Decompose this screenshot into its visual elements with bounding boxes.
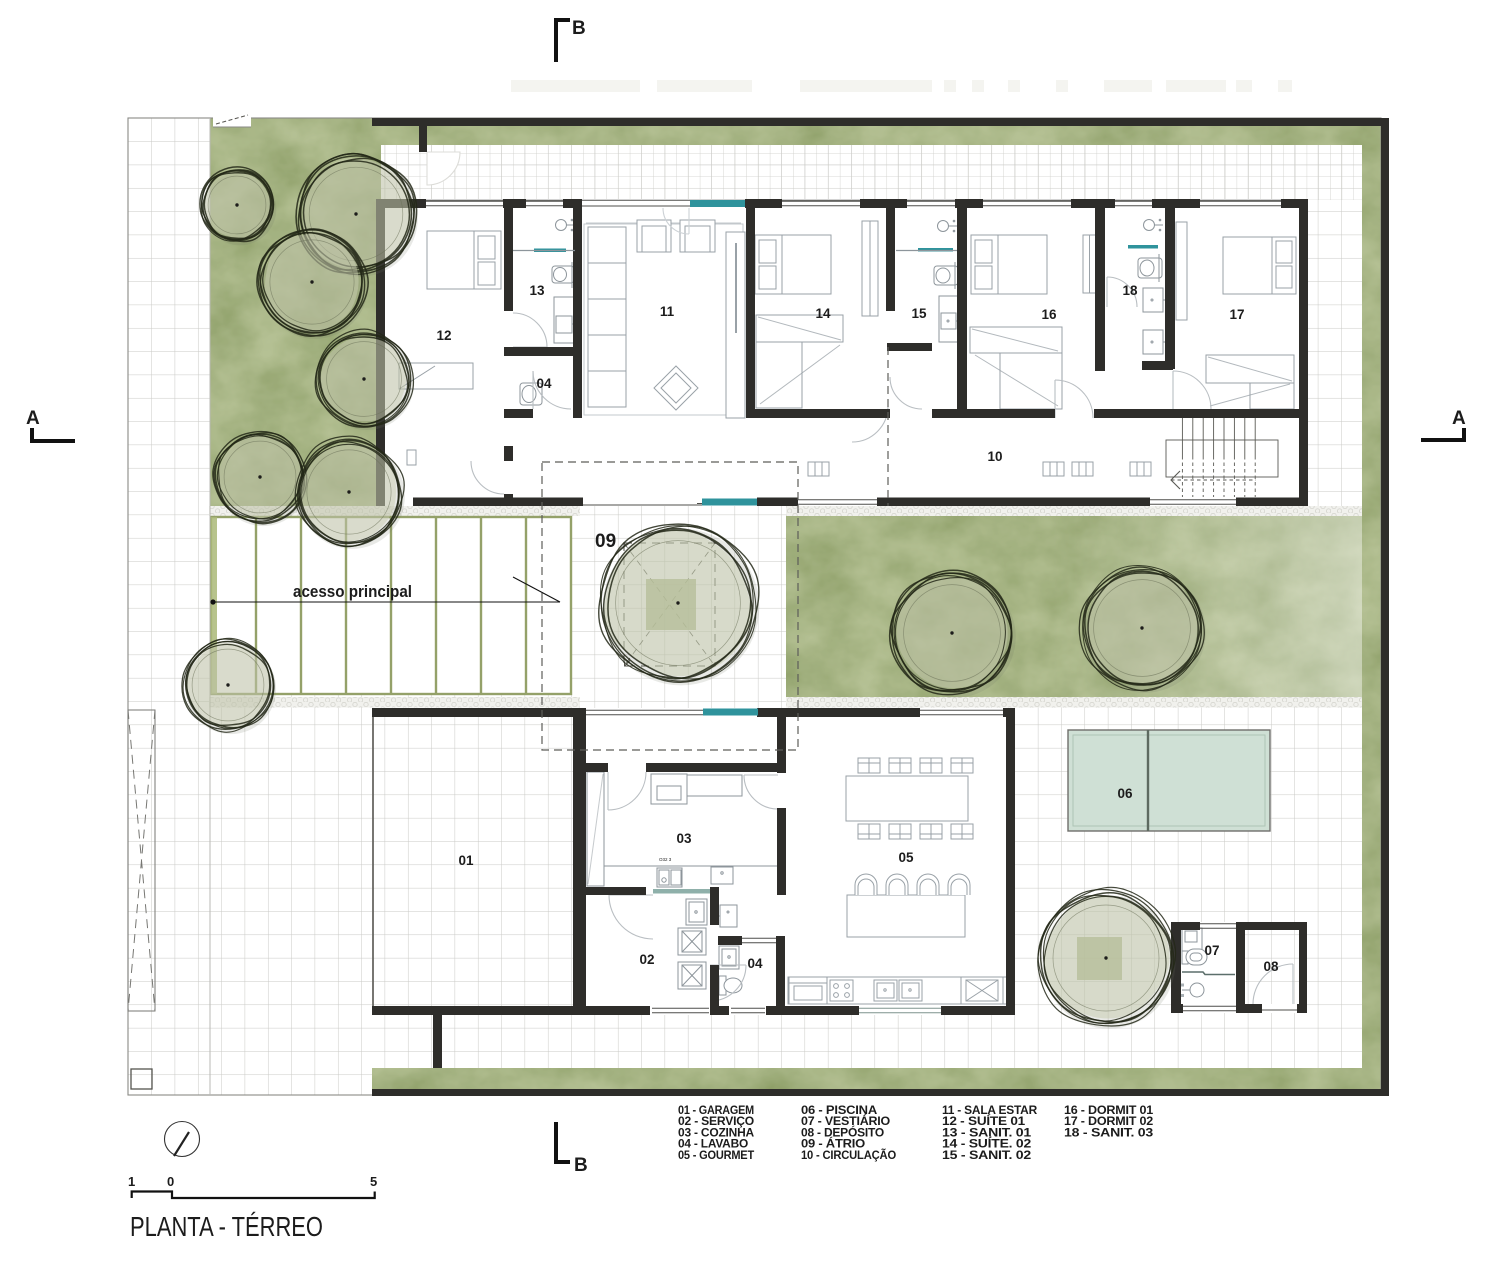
- svg-text:04: 04: [747, 956, 763, 971]
- svg-text:07: 07: [1204, 943, 1219, 958]
- svg-text:PLANTA - TÉRREO: PLANTA - TÉRREO: [130, 1211, 323, 1242]
- svg-text:A: A: [1452, 408, 1466, 429]
- svg-text:B: B: [574, 1155, 588, 1176]
- svg-text:09: 09: [595, 531, 616, 552]
- svg-text:06: 06: [1117, 786, 1133, 801]
- svg-text:acesso principal: acesso principal: [293, 583, 412, 601]
- svg-text:04: 04: [536, 376, 552, 391]
- svg-text:02: 02: [639, 952, 654, 967]
- svg-text:05: 05: [898, 850, 914, 865]
- svg-text:0: 0: [167, 1174, 174, 1189]
- svg-text:13: 13: [529, 283, 545, 298]
- svg-text:17: 17: [1229, 307, 1244, 322]
- svg-text:O32 3: O32 3: [659, 857, 672, 862]
- svg-text:5: 5: [370, 1174, 377, 1189]
- svg-text:14: 14: [815, 306, 831, 321]
- svg-text:15 - SANIT. 02: 15 - SANIT. 02: [942, 1149, 1031, 1162]
- svg-text:15: 15: [911, 306, 927, 321]
- svg-text:B: B: [572, 18, 586, 39]
- svg-text:08: 08: [1263, 959, 1279, 974]
- svg-text:12: 12: [436, 328, 451, 343]
- svg-text:18: 18: [1122, 283, 1138, 298]
- svg-text:18 - SANIT. 03: 18 - SANIT. 03: [1064, 1126, 1154, 1139]
- svg-text:03: 03: [676, 831, 692, 846]
- svg-text:05 - GOURMET: 05 - GOURMET: [678, 1149, 754, 1162]
- svg-text:01: 01: [458, 853, 474, 868]
- svg-text:10: 10: [987, 449, 1002, 464]
- svg-text:16: 16: [1041, 307, 1057, 322]
- svg-text:1: 1: [128, 1174, 135, 1189]
- svg-text:10 - CIRCULAÇÃO: 10 - CIRCULAÇÃO: [801, 1149, 896, 1162]
- svg-text:A: A: [26, 408, 40, 429]
- svg-text:11: 11: [660, 304, 675, 319]
